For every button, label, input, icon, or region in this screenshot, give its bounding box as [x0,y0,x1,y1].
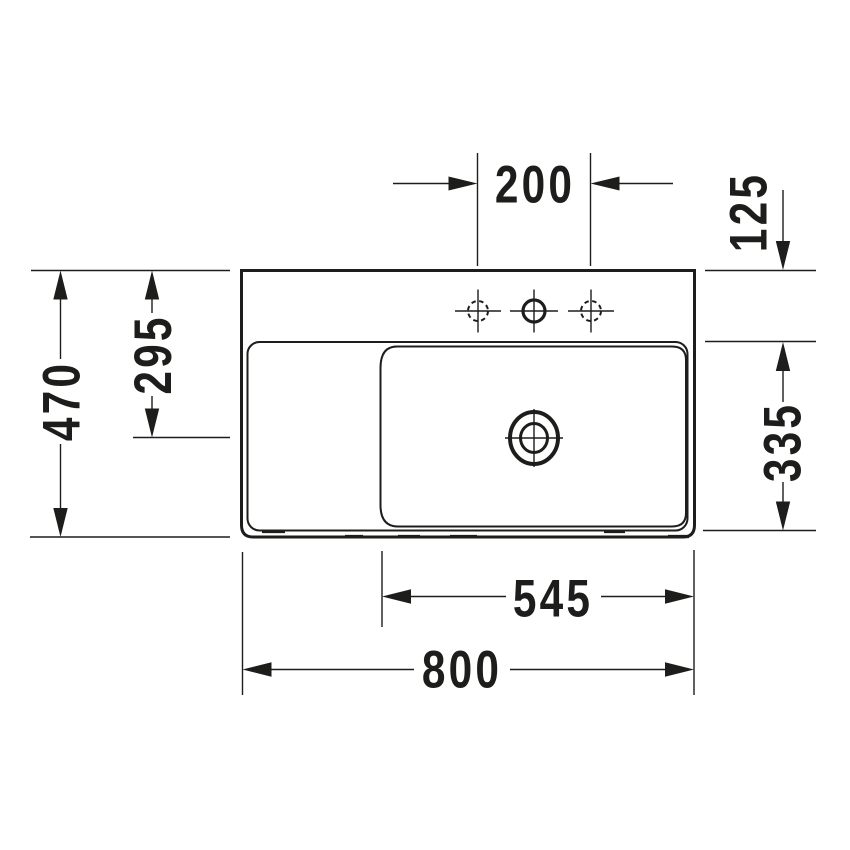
dimension-right-lower: 335 [703,342,816,531]
basin-bowl-edge [381,347,687,527]
dimension-bottom-inner: 545 [382,551,694,629]
dimension-left-inner-label: 295 [125,314,184,394]
dimension-left-inner: 295 [125,271,230,438]
faucet-hole-center-icon [510,290,558,333]
faucet-hole-left-icon [455,290,501,333]
dimension-right-lower-label: 335 [754,402,813,482]
drain-icon [505,409,563,467]
dimension-top-right-label: 125 [720,172,779,252]
dimension-top-right: 125 [705,172,816,271]
dimension-bottom-outer-label: 800 [422,641,502,700]
dimension-top-center: 200 [393,153,673,266]
faucet-hole-right-icon [568,290,614,333]
dimension-left-outer-label: 470 [33,361,92,441]
washbasin-technical-drawing: 200 125 335 [0,0,850,850]
dimension-bottom-outer: 800 [243,550,695,700]
basin-rim-inner-edge [248,342,688,531]
dimension-left-outer: 470 [30,271,230,538]
dimension-bottom-inner-label: 545 [513,570,593,629]
dimension-top-center-label: 200 [495,156,575,215]
